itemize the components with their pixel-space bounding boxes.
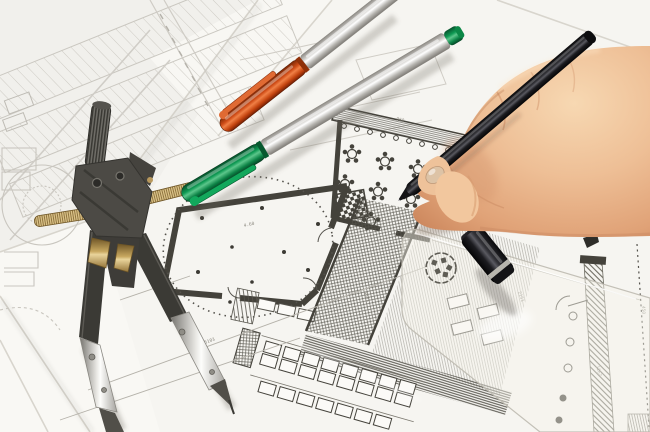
hinge-screw: [116, 172, 124, 180]
hinge-screw: [93, 179, 102, 188]
scene-canvas: 5103 960 4.60 2151 1267 4501 450: [0, 0, 650, 432]
photo-architect-desk: 5103 960 4.60 2151 1267 4501 450: [0, 0, 650, 432]
brass-nub: [147, 177, 153, 183]
leg-screw: [89, 354, 95, 360]
leg-screw: [179, 329, 185, 335]
leg-screw: [102, 388, 107, 393]
leg-screw: [210, 370, 215, 375]
